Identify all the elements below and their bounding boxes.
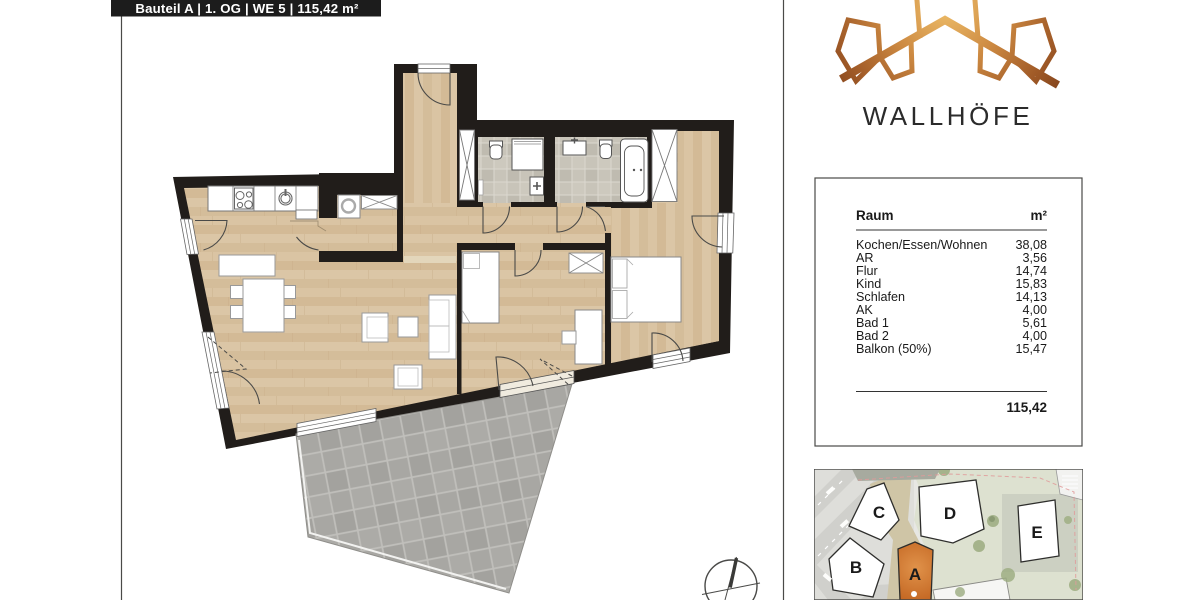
svg-text:D: D (944, 504, 956, 523)
svg-text:15,83: 15,83 (1015, 277, 1047, 291)
svg-text:Schlafen: Schlafen (856, 290, 905, 304)
svg-text:AR: AR (856, 251, 874, 265)
svg-text:m²: m² (1031, 208, 1048, 223)
svg-text:Bauteil A | 1. OG | WE 5 | 115: Bauteil A | 1. OG | WE 5 | 115,42 m² (135, 1, 359, 16)
svg-text:Kochen/Essen/Wohnen: Kochen/Essen/Wohnen (856, 238, 987, 252)
svg-text:14,13: 14,13 (1015, 290, 1047, 304)
svg-text:5,61: 5,61 (1022, 316, 1047, 330)
svg-text:AK: AK (856, 303, 873, 317)
svg-text:4,00: 4,00 (1022, 303, 1047, 317)
svg-text:4,00: 4,00 (1022, 329, 1047, 343)
svg-text:3,56: 3,56 (1022, 251, 1047, 265)
svg-text:Flur: Flur (856, 264, 878, 278)
svg-text:115,42: 115,42 (1006, 400, 1047, 415)
svg-text:A: A (909, 565, 921, 584)
svg-text:Bad 2: Bad 2 (856, 329, 889, 343)
svg-text:14,74: 14,74 (1015, 264, 1047, 278)
svg-text:Balkon (50%): Balkon (50%) (856, 342, 932, 356)
svg-text:B: B (850, 558, 862, 577)
svg-text:Kind: Kind (856, 277, 881, 291)
svg-text:E: E (1031, 523, 1042, 542)
svg-text:38,08: 38,08 (1015, 238, 1047, 252)
svg-text:Bad 1: Bad 1 (856, 316, 889, 330)
svg-text:15,47: 15,47 (1015, 342, 1047, 356)
svg-text:Raum: Raum (856, 208, 894, 223)
svg-text:WALLHÖFE: WALLHÖFE (863, 101, 1034, 131)
svg-text:C: C (873, 503, 885, 522)
